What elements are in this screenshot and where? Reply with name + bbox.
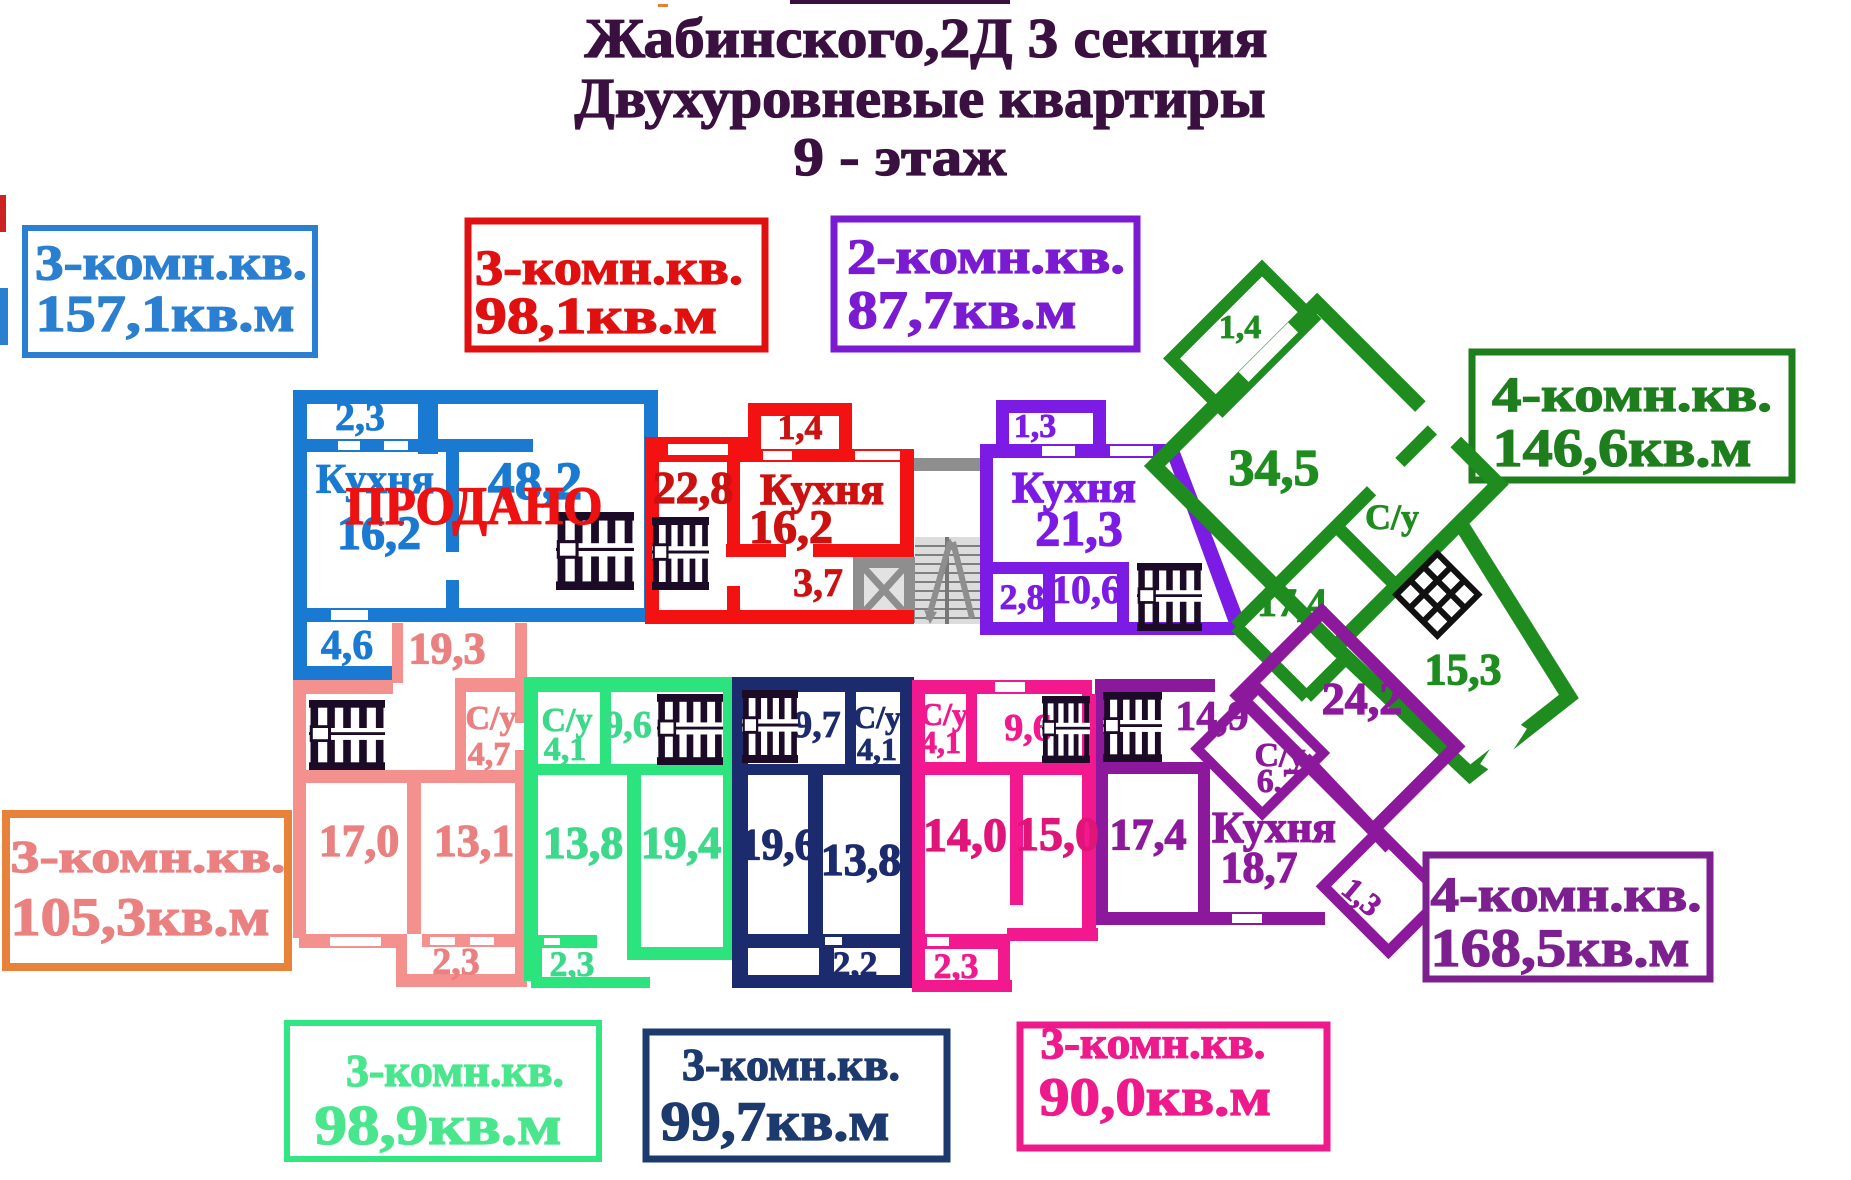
svg-text:4-комн.кв.: 4-комн.кв.	[1492, 366, 1772, 422]
svg-text:Двухуровневые квартиры: Двухуровневые квартиры	[575, 68, 1266, 130]
svg-text:99,7кв.м: 99,7кв.м	[661, 1091, 890, 1153]
svg-text:19,6: 19,6	[740, 820, 817, 869]
svg-text:22,8: 22,8	[653, 462, 734, 513]
svg-text:13,8: 13,8	[543, 817, 624, 868]
svg-text:2,8: 2,8	[1000, 577, 1045, 617]
svg-text:2,3: 2,3	[335, 394, 385, 439]
svg-text:С/у: С/у	[853, 699, 901, 735]
svg-text:1,4: 1,4	[1219, 309, 1262, 346]
svg-text:С/у: С/у	[1365, 497, 1419, 537]
svg-text:15,3: 15,3	[1425, 645, 1502, 694]
svg-text:13,8: 13,8	[821, 834, 902, 885]
svg-text:34,5: 34,5	[1229, 440, 1320, 497]
svg-text:3-комн.кв.: 3-комн.кв.	[682, 1039, 900, 1090]
svg-text:16,2: 16,2	[749, 501, 833, 554]
svg-text:6,7: 6,7	[1257, 763, 1300, 800]
svg-text:87,7кв.м: 87,7кв.м	[848, 280, 1077, 340]
svg-text:3-комн.кв.: 3-комн.кв.	[35, 234, 307, 290]
svg-text:2,2: 2,2	[833, 944, 878, 984]
svg-text:9,7: 9,7	[793, 704, 841, 746]
svg-text:1,3: 1,3	[1335, 870, 1389, 923]
svg-text:3,7: 3,7	[793, 560, 843, 605]
svg-text:146,6кв.м: 146,6кв.м	[1493, 418, 1752, 478]
svg-text:ПРОДАНО: ПРОДАНО	[346, 476, 603, 536]
svg-text:1,3: 1,3	[1014, 408, 1057, 445]
svg-text:168,5кв.м: 168,5кв.м	[1431, 918, 1690, 978]
svg-text:90,0кв.м: 90,0кв.м	[1039, 1067, 1271, 1127]
svg-text:4,1: 4,1	[857, 731, 897, 767]
svg-text:19,3: 19,3	[409, 624, 486, 673]
svg-text:2,3: 2,3	[934, 946, 979, 986]
svg-text:98,1кв.м: 98,1кв.м	[475, 288, 717, 345]
svg-text:С/у: С/у	[466, 700, 517, 737]
svg-text:Жабинского,2Д 3 секция: Жабинского,2Д 3 секция	[585, 8, 1268, 70]
svg-text:17,0: 17,0	[319, 815, 400, 866]
svg-text:14,9: 14,9	[1175, 694, 1249, 740]
svg-text:1,4: 1,4	[778, 407, 823, 447]
svg-text:24,2: 24,2	[1322, 673, 1403, 724]
svg-text:10,6: 10,6	[1051, 567, 1121, 612]
svg-text:13,1: 13,1	[434, 815, 515, 866]
svg-text:105,3кв.м: 105,3кв.м	[11, 887, 270, 947]
svg-text:9,6: 9,6	[604, 704, 652, 746]
svg-text:3-комн.кв.: 3-комн.кв.	[346, 1045, 564, 1096]
svg-text:4,7: 4,7	[468, 736, 511, 773]
svg-text:21,3: 21,3	[1035, 500, 1123, 556]
svg-text:18,7: 18,7	[1221, 843, 1298, 892]
svg-text:19,4: 19,4	[641, 817, 722, 868]
svg-text:2-комн.кв.: 2-комн.кв.	[847, 228, 1125, 284]
svg-text:98,9кв.м: 98,9кв.м	[315, 1095, 562, 1157]
svg-text:4,6: 4,6	[321, 623, 374, 669]
svg-text:3-комн.кв.: 3-комн.кв.	[475, 239, 743, 295]
svg-text:2,3: 2,3	[432, 941, 480, 983]
svg-text:9 - этаж: 9 - этаж	[794, 127, 1008, 187]
svg-text:157,1кв.м: 157,1кв.м	[36, 286, 295, 343]
svg-text:14,0: 14,0	[923, 809, 1007, 862]
svg-text:4,1: 4,1	[921, 724, 961, 760]
svg-text:3-комн.кв.: 3-комн.кв.	[11, 831, 286, 882]
svg-text:2,3: 2,3	[550, 944, 595, 984]
svg-text:17,4: 17,4	[1110, 810, 1187, 859]
svg-text:15,0: 15,0	[1015, 808, 1099, 861]
svg-text:4-комн.кв.: 4-комн.кв.	[1431, 866, 1702, 922]
svg-text:3-комн.кв.: 3-комн.кв.	[1041, 1019, 1266, 1068]
svg-text:4,1: 4,1	[544, 731, 587, 768]
